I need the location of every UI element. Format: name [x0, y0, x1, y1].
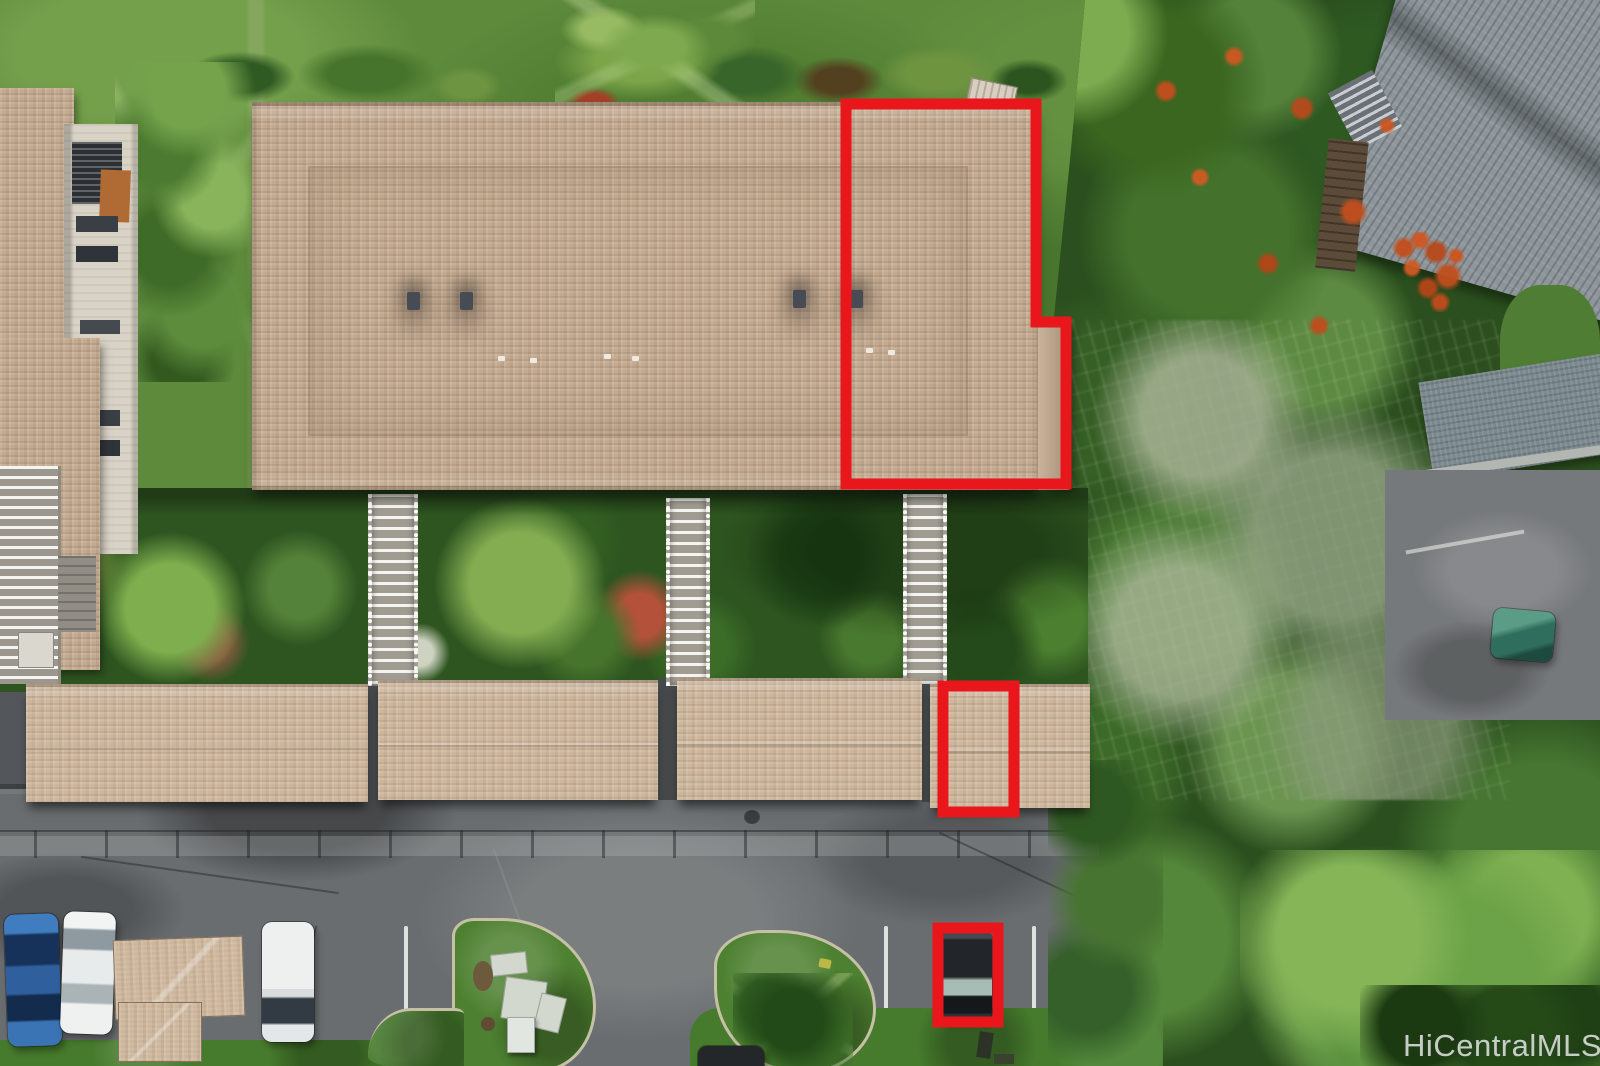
- roof-fixture: [530, 358, 537, 363]
- white-van: [262, 922, 314, 1042]
- driveway-line: [1406, 530, 1525, 555]
- asphalt-crack: [81, 856, 339, 894]
- parking-stall-line: [404, 926, 408, 1012]
- window: [76, 216, 118, 232]
- yellow-curb-mark: [818, 958, 832, 969]
- lower-unit-roof: [26, 684, 368, 802]
- dirt-patch: [481, 1017, 495, 1031]
- roof-fixture: [498, 356, 505, 361]
- orange-door: [99, 169, 131, 222]
- roof-fixture: [888, 350, 895, 355]
- palm-tree-top: [555, 0, 755, 105]
- white-car: [60, 911, 116, 1035]
- utility-box: [994, 1054, 1014, 1064]
- roof-vent: [793, 290, 806, 308]
- walkway-gap: [922, 680, 930, 802]
- aerial-photo-scene: HiCentralMLS: [0, 0, 1600, 1066]
- highlighted-parked-car: [940, 930, 992, 1020]
- grass-island-left: [452, 918, 596, 1066]
- dirt-patch: [473, 961, 493, 991]
- walkway-gap: [658, 678, 677, 800]
- left-building-roof-upper: [0, 88, 74, 342]
- manhole-cover: [744, 810, 760, 824]
- blue-car: [4, 913, 63, 1047]
- sign-board: [507, 1017, 535, 1053]
- roof-fixture: [632, 356, 639, 361]
- roof-fixture: [604, 354, 611, 359]
- shed-roof-extension: [118, 1002, 202, 1062]
- pavement-marker: [490, 951, 528, 977]
- window: [76, 246, 118, 262]
- parking-lot: [0, 784, 1100, 1066]
- main-roof-right-wing: [1038, 318, 1069, 490]
- storage-unit-roof: [930, 684, 1090, 808]
- flowering-tree-orange: [1115, 22, 1455, 367]
- lower-unit-roof: [378, 680, 658, 800]
- lower-unit-roof: [677, 678, 922, 800]
- roof-vent: [460, 292, 473, 310]
- roof-vent: [850, 290, 863, 308]
- walkway-bridge: [903, 494, 947, 684]
- flowering-bush-orange: [1392, 232, 1472, 312]
- dark-car-bottom-edge: [698, 1046, 764, 1066]
- parking-stall-line: [1032, 926, 1036, 1012]
- walkway-bridge: [666, 498, 710, 686]
- window: [80, 320, 120, 334]
- utility-cabinet: [18, 632, 54, 668]
- roof-vent: [407, 292, 420, 310]
- grass-island-arm: [368, 1008, 464, 1066]
- left-walkway-steps: [58, 556, 96, 632]
- walkway-bridge: [368, 494, 418, 686]
- parking-stall-line: [884, 926, 888, 1012]
- main-building-roof: [252, 102, 1040, 490]
- neighbor-driveway: [1385, 470, 1600, 720]
- watermark: HiCentralMLS: [1403, 1028, 1600, 1064]
- gutter-seam: [0, 830, 1100, 858]
- teal-car: [1490, 607, 1556, 662]
- roof-fixture: [866, 348, 873, 353]
